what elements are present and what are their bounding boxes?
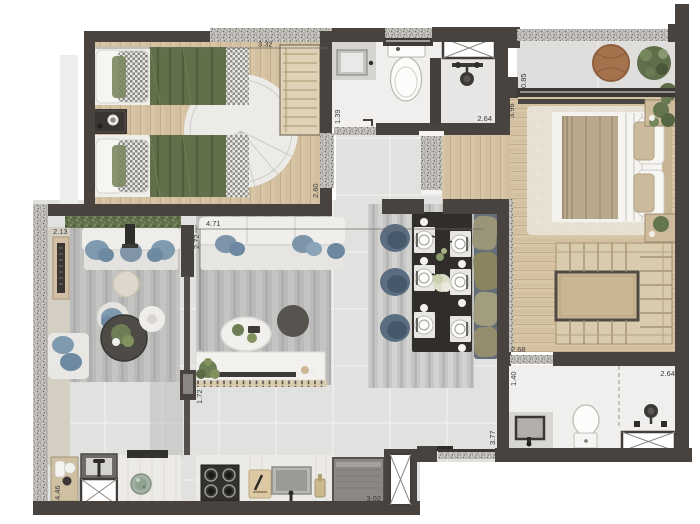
svg-text:2.64: 2.64: [660, 369, 675, 378]
svg-text:2.64: 2.64: [477, 114, 492, 123]
svg-text:1.40: 1.40: [509, 371, 518, 386]
svg-text:3.02: 3.02: [366, 494, 381, 503]
svg-text:3.96: 3.96: [507, 103, 516, 118]
svg-text:0.85: 0.85: [519, 73, 528, 88]
svg-text:2.68: 2.68: [511, 345, 526, 354]
svg-text:3.32: 3.32: [258, 40, 273, 49]
svg-text:1.39: 1.39: [333, 109, 342, 124]
svg-text:2.60: 2.60: [311, 183, 320, 198]
svg-text:1.72: 1.72: [195, 389, 204, 404]
svg-text:3.77: 3.77: [488, 430, 497, 445]
svg-text:4.46: 4.46: [53, 485, 62, 500]
svg-text:2.72: 2.72: [192, 234, 201, 249]
svg-text:2.13: 2.13: [53, 227, 68, 236]
svg-text:4.71: 4.71: [206, 219, 221, 228]
